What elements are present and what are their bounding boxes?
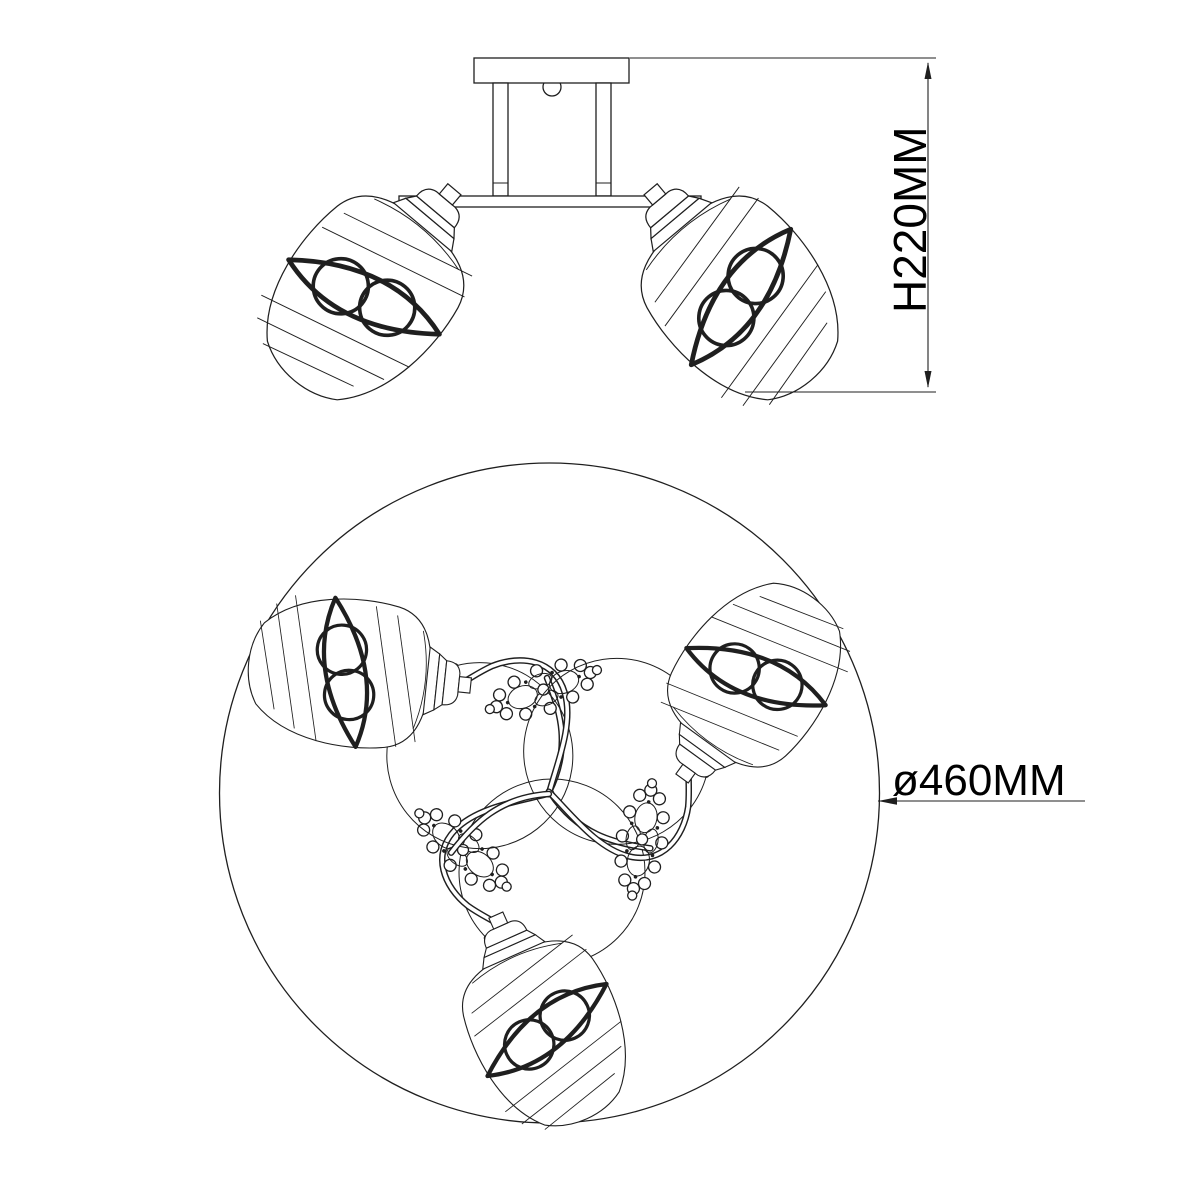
diameter-dimension: ø460MM	[878, 756, 1085, 805]
height-label: H220MM	[884, 126, 936, 313]
technical-drawing: H220MM ø460MM	[0, 0, 1200, 1200]
mounting-rods	[493, 83, 611, 196]
ceiling-plate	[474, 58, 629, 83]
lamp-shade-side-right	[587, 136, 874, 433]
side-view	[231, 58, 874, 433]
drawing-canvas: H220MM ø460MM	[0, 0, 1200, 1200]
top-view	[189, 463, 933, 1149]
diameter-label: ø460MM	[892, 756, 1066, 805]
plan-sector-bottom	[399, 678, 654, 1149]
lamp-shade-side-left	[231, 136, 518, 433]
